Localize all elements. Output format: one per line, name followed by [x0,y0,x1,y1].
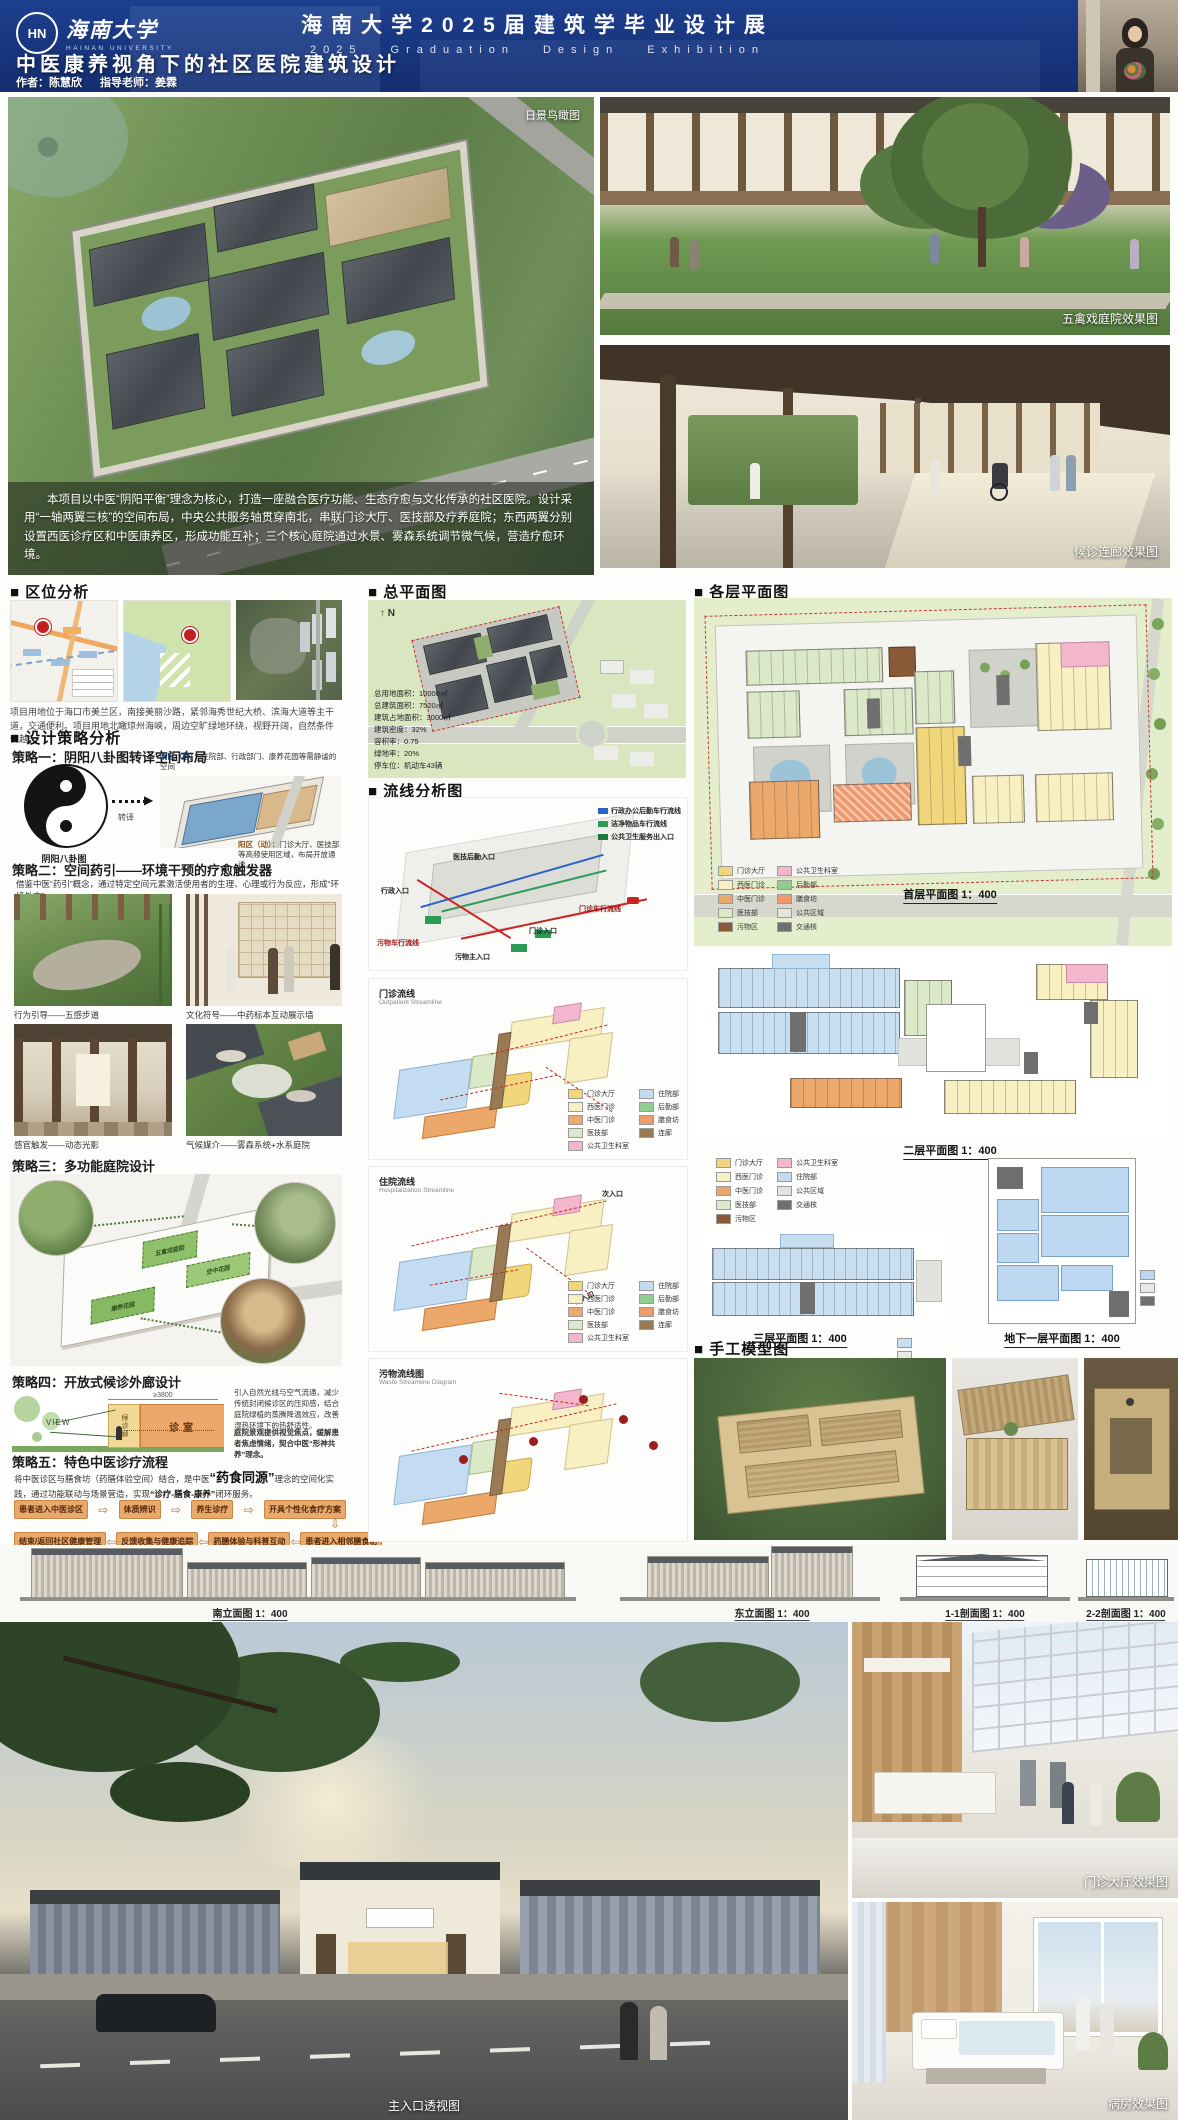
legend-label: 西医门诊 [587,1102,615,1112]
legend-item: 污物区 [718,922,765,932]
flow-down-arrow-icon: ⇩ [330,1518,340,1530]
s3-photo-circle-2 [254,1182,336,1264]
legend-item: 公共卫生科室 [777,866,838,876]
second-floor-label: 二层平面图 1：400 [903,1142,997,1160]
stat-line: 建筑占地面积：3000㎡ [374,712,451,723]
legend-item: 中医门诊 [568,1307,629,1317]
ward-nurse-figure [1076,1998,1090,2050]
legend-item: 门诊大厅 [718,866,765,876]
aerial-road-right [461,97,594,276]
legend-item: 医技部 [568,1320,629,1330]
section-title-models: ■ 手工模型图 [694,1338,789,1359]
corridor-wheelchair-wheel-icon [990,483,1008,501]
first-floor-label: 首层平面图 1：400 [903,886,997,904]
map-beach-strips [160,653,190,687]
legend-swatch [568,1102,583,1112]
legend-swatch [716,1200,731,1210]
strategy2-photo-wall-caption: 文化符号——中药标本互动展示墙 [186,1009,314,1021]
author-photo [1078,0,1178,92]
f1-east-rooms-2 [1035,772,1114,821]
s3-dotted-link [94,1215,184,1226]
legend-item: 住院部 [639,1281,679,1291]
courtyard-path [600,293,1170,309]
legend-label: 西医门诊 [735,1172,763,1182]
f2-top-rooms [772,954,830,969]
legend-label: 医技部 [735,1200,756,1210]
s4-room-box: 诊室 [140,1404,224,1448]
lobby-plant [1116,1772,1160,1822]
legend-swatch [718,894,733,904]
legend-swatch [716,1172,731,1182]
legend-swatch [777,922,792,932]
section-2-2-label: 2-2剖面图 1：400 [1086,1605,1165,1621]
corridor-column [660,375,676,568]
d1-label-outpatient-entry: 门诊入口 [529,926,557,936]
map-photo-road [316,600,320,700]
model-photo-3 [1084,1358,1178,1540]
f1-east-rooms [972,775,1026,824]
legend-label: 膳食坊 [658,1115,679,1125]
legend-item: 住院部 [777,1172,838,1182]
poster: HN 海南大学 HAINAN UNIVERSITY 海南大学2025届建筑学毕业… [0,0,1178,2120]
legend-label: 门诊大厅 [737,866,765,876]
strategy2-photo-mist-caption: 气候媒介——雾森系统+水系庭院 [186,1139,310,1151]
legend-item: 门诊大厅 [568,1281,629,1291]
legend-item: 连廊 [639,1128,679,1138]
legend-swatch [716,1158,731,1168]
corridor-far-building [880,403,1100,473]
legend-swatch [716,1186,731,1196]
d1-label-waste-entry: 污物主入口 [455,952,490,962]
legend-label: 住院部 [796,1172,817,1182]
entrance-sun-glow [200,1732,460,1872]
entrance-figure-2 [650,2006,667,2060]
legend-swatch [777,1158,792,1168]
mp-neighbor-buildings [600,660,624,674]
stat-line: 建筑密度：32% [374,724,451,735]
flow-step: 体质辨识 [119,1500,161,1519]
s5-desc-3: 闭环服务。 [215,1489,258,1499]
east-elevation-label: 东立面图 1：400 [734,1605,809,1621]
s4-sight-arrow [50,1432,116,1438]
strategy4-title: 策略四：开放式候诊外廊设计 [12,1372,181,1391]
legend-swatch [718,866,733,876]
f1-legend: 门诊大厅西医门诊中医门诊医技部污物区公共卫生科室后勤部膳食坊公共区域交通核 [718,866,838,932]
legend-item: 膳食坊 [639,1115,679,1125]
legend-swatch [639,1128,654,1138]
strategy2-photo-mist-courtyard [186,1024,342,1136]
project-title: 中医康养视角下的社区医院建筑设计 [16,48,400,77]
b1-room [997,1233,1039,1263]
legend-swatch [639,1281,654,1291]
legend-swatch [777,1186,792,1196]
legend-item: 污物区 [716,1214,763,1224]
d3-name-en: Hospitalization Streamline [379,1187,454,1194]
legend-label: 医技部 [587,1320,608,1330]
f2-tcm-band [790,1078,902,1108]
building-block [213,183,318,252]
location-map-photo [236,600,342,700]
f2-legend: 门诊大厅西医门诊中医门诊医技部污物区公共卫生科室住院部公共区域交通核 [716,1158,838,1224]
d1-entry-arrow-icon [425,916,441,924]
legend-swatch [718,880,733,890]
elevation-strip: 南立面图 1：400 东立面图 1：400 1-1剖面图 1：400 2-2剖面… [0,1545,1178,1622]
b1-room [1041,1215,1129,1257]
section-2-2-drawing [1078,1545,1174,1607]
ward-window-mullion [1101,1918,1104,2028]
master-plan: ↑ N 总用地面积：10000㎡总建筑面积：7520㎡建筑占地面积：3000㎡建… [368,600,686,778]
legend-swatch [568,1307,583,1317]
b1-room [1061,1265,1113,1291]
legend-swatch [777,1200,792,1210]
legend-label: 交通核 [796,922,817,932]
s5-desc-1: 将中医诊区与膳食坊（药膳体验空间）结合，是中医 [14,1474,210,1484]
legend-item: 西医门诊 [718,880,765,890]
legend-label: 公共区域 [796,1186,824,1196]
basement-plan [988,1158,1136,1324]
map-photo-towers [326,608,336,638]
flow-arrow-icon: ⇨ [171,1504,181,1516]
lobby-kiosk [1020,1760,1036,1806]
legend-item: 门诊大厅 [568,1089,629,1099]
stat-line: 总建筑面积：7520㎡ [374,700,451,711]
legend-label: 膳食坊 [658,1307,679,1317]
legend-swatch [777,894,792,904]
legend-item: 医技部 [718,908,765,918]
lobby-skylight [972,1622,1178,1753]
section-title-location: ■ 区位分析 [10,581,89,602]
legend-item: 中医门诊 [716,1186,763,1196]
legend-item: 公共区域 [777,908,838,918]
photo-flower-bouquet [1124,62,1146,80]
s3-photo-circle-3 [220,1278,306,1364]
entrance-car [96,1994,216,2032]
photo-building-column [1086,0,1100,92]
legend-label: 公共卫生科室 [587,1333,629,1343]
stat-line: 容积率：0.75 [374,736,451,747]
courtyard-figure [670,237,679,267]
circulation-legend: 门诊大厅西医门诊中医门诊医技部公共卫生科室住院部后勤部膳食坊连廊 [568,1089,679,1151]
f2-public-health [1066,964,1108,983]
legend-label: 西医门诊 [587,1294,615,1304]
strategy2-photo-colonnade [14,1024,172,1136]
f2-inpatient-band-2 [718,1012,900,1054]
legend-label: 后勤部 [658,1294,679,1304]
strategy2-photo-path [14,894,172,1006]
legend-item: 后勤部 [777,880,838,890]
ward-bed-base [926,2068,1046,2084]
f1-medtech-wing [746,647,883,685]
legend-label: 公共卫生科室 [796,866,838,876]
translate-arrow-icon [112,800,146,803]
s4-tree-icon [14,1396,40,1422]
lobby-counter [874,1772,996,1814]
strategy2-title: 策略二：空间药引——环境干预的疗愈触发器 [12,860,272,879]
b1-core [997,1167,1023,1189]
legend-swatch [718,908,733,918]
legend-swatch [568,1115,583,1125]
legend-swatch [639,1294,654,1304]
s5-desc-highlight: “药食同源” [210,1470,275,1485]
location-map-roads [10,600,118,702]
legend-item: 交通核 [777,922,838,932]
s4-dim-label: ≥3800 [108,1392,218,1400]
d4-waste-point-icon [459,1455,468,1464]
s4-dotted-arrow [126,1430,214,1431]
entrance-tree-canopy [0,1622,240,1772]
legend-swatch [718,922,733,932]
building-block [342,237,456,324]
ward-curtain [852,1902,886,2082]
lobby-label: 门诊大厅效果图 [1084,1873,1168,1890]
ward-label: 病房效果图 [1108,2095,1168,2112]
d1-label: 洁净物品车行流线 [611,819,667,829]
s3-photo-circle-1 [18,1180,94,1256]
entrance-figure-1 [620,2002,638,2060]
section-title-master-plan: ■ 总平面图 [368,581,447,602]
lobby-signage [864,1658,950,1672]
mp-building [529,645,568,685]
s4-person-icon [116,1426,122,1440]
stat-line: 绿地率：20% [374,748,451,759]
f3-top-rooms [780,1234,834,1248]
legend-swatch [639,1320,654,1330]
d1-label: 行政办公后勤车行流线 [611,806,681,816]
legend-label: 门诊大厅 [735,1158,763,1168]
circulation-hospitalization-diagram: 住院流线 Hospitalization Streamline 次入口 主入口 … [368,1166,688,1352]
s3-courtyard-1-label: 五禽戏庭院 [155,1242,185,1258]
map-site-marker [35,619,51,635]
circulation-waste-diagram: 污物流线图 Waste Streamline Diagram [368,1358,688,1542]
aerial-render: 日景鸟瞰图 本项目以中医“阴阳平衡”理念为核心，打造一座融合医疗功能、生态疗愈与… [8,97,594,575]
legend-item: 西医门诊 [568,1102,629,1112]
f2-core [790,1012,806,1052]
legend-label: 住院部 [658,1089,679,1099]
s5-desc-highlight-2: “诊疗-膳食-康养” [150,1489,215,1499]
d3-entry1-label: 次入口 [602,1189,623,1199]
s4-sight-arrow [55,1410,116,1424]
s3-courtyard-2-label: 空中花园 [206,1263,230,1277]
strategy4-para1: 引入自然光线与空气流通，减少传统封闭候诊区的压抑感，结合庭院绿植的蒸腾降温效应，… [234,1388,344,1432]
b1-room [1041,1167,1129,1213]
second-floor-plan [694,952,1172,1138]
entrance-render: 主入口透视图 [0,1622,848,2120]
aerial-water [8,97,128,197]
legend-item: 中医门诊 [568,1115,629,1125]
legend-label: 公共卫生科室 [796,1158,838,1168]
f2-east-col [1090,1000,1138,1078]
strategy1-axon [160,776,342,848]
s4-room-label: 诊室 [169,1419,197,1434]
ward-render: 病房效果图 [852,1902,1178,2120]
legend-item: 中医门诊 [718,894,765,904]
circulation-vehicle-diagram: 行政办公后勤车行流线 洁净物品车行流线 公共卫生服务出入口 医技后勤入口 行政入… [368,797,688,971]
corridor-label: 候诊连廊效果图 [1074,543,1158,560]
legend-label: 交通核 [796,1200,817,1210]
mp-north-label: N [388,608,395,619]
ward-plant [1138,2032,1168,2070]
model-figure [1126,1398,1134,1406]
legend-item: 后勤部 [639,1102,679,1112]
d1-label-medtech-entry: 医技后勤入口 [453,852,495,862]
ward-bed [912,2012,1064,2070]
location-map-coast [123,600,231,702]
section-title-strategies: ■ 设计策略分析 [10,727,121,748]
circulation-legend-2: 门诊大厅西医门诊中医门诊医技部公共卫生科室住院部后勤部膳食坊连廊 [568,1281,679,1343]
legend-label: 中医门诊 [587,1307,615,1317]
south-elevation-label: 南立面图 1：400 [212,1605,287,1621]
translate-arrow-label: 转译 [118,812,134,823]
car-icon [627,897,639,904]
legend-item: 公共卫生科室 [568,1333,629,1343]
legend-swatch [568,1281,583,1291]
b1-core-2 [1109,1291,1129,1317]
legend-label: 后勤部 [796,880,817,890]
flow-arrow-icon: ⇨ [244,1504,254,1516]
expo-title: 海南大学2025届建筑学毕业设计展 [0,9,1075,39]
strategy2-photo-wall [186,894,342,1006]
third-floor-plan [700,1230,950,1324]
master-plan-stats: 总用地面积：10000㎡总建筑面积：7520㎡建筑占地面积：3000㎡建筑密度：… [374,688,451,771]
mp-courtyard [531,679,561,699]
model-courtyard-void [1110,1418,1152,1474]
legend-label: 后勤部 [658,1102,679,1112]
aerial-building-cluster [72,141,487,477]
strategy1-yin-label: 阴区（静）：住院部、行政部门、康养花园等需静谧的空间 [160,752,342,772]
courtyard-label: 五禽戏庭院效果图 [1062,310,1158,327]
legend-label: 医技部 [737,908,758,918]
legend-swatch [568,1089,583,1099]
mp-building [486,656,535,703]
model-closeup-facade [966,1438,1068,1510]
building-block [106,332,206,430]
legend-swatch [639,1089,654,1099]
strategy2-photo-colonnade-caption: 感官触发——动态光影 [14,1139,99,1151]
f2-core-2 [1024,1052,1038,1074]
legend-swatch [639,1102,654,1112]
lobby-render: 门诊大厅效果图 [852,1622,1178,1898]
legend-swatch [639,1115,654,1125]
legend-item: 膳食坊 [639,1307,679,1317]
legend-label: 膳食坊 [796,894,817,904]
f3-right-block [916,1260,942,1302]
legend-item: 医技部 [716,1200,763,1210]
legend-label: 连廊 [658,1128,672,1138]
legend-label: 住院部 [658,1281,679,1291]
legend-label: 医技部 [587,1128,608,1138]
map-blue-tags [23,649,41,656]
strategy5-flow-top: 患者进入中医诊区⇨体质辨识⇨养生诊疗⇨开具个性化食疗方案 [14,1500,346,1519]
author: 作者：陈慧欣 [16,74,82,90]
map-site-marker [182,627,198,643]
translate-arrow-head-icon: ▶ [144,793,153,807]
f1-medtech-wing-3 [843,687,913,736]
legend-label: 门诊大厅 [587,1089,615,1099]
section-1-1-label: 1-1剖面图 1：400 [945,1605,1024,1621]
legend-swatch [777,866,792,876]
legend-item: 公共卫生科室 [777,1158,838,1168]
axon-yin-zone [181,793,263,845]
legend-label: 污物区 [735,1214,756,1224]
s3-courtyard-3-label: 康养花园 [111,1299,135,1313]
stat-line: 总用地面积：10000㎡ [374,688,451,699]
courtyard-walkway [600,191,1170,205]
yang-title: 阳区（动）： [238,840,279,849]
d4-name-en: Waste Streamline Diagram [379,1379,456,1386]
flow-step: 患者进入中医诊区 [14,1500,88,1519]
section-1-1-drawing [900,1545,1070,1607]
strategy2-photo-path-caption: 行为引导——五感步道 [14,1009,99,1021]
legend-label: 公共区域 [796,908,824,918]
flow-step: 养生诊疗 [191,1500,233,1519]
building-block [208,252,329,341]
d1-label-waste-flow: 污物车行流线 [377,938,419,948]
legend-item: 住院部 [639,1089,679,1099]
legend-swatch [777,1172,792,1182]
entry-icon [598,834,608,840]
b1-room [997,1265,1059,1301]
strategy5-desc: 将中医诊区与膳食坊（药膳体验空间）结合，是中医“药食同源”理念的空间化实践，通过… [14,1468,344,1500]
f1-canteen-strip [833,783,912,822]
legend-swatch [568,1333,583,1343]
strategy4-para2: 庭院景观提供视觉焦点，缓解患者焦虑情绪，契合中医“形神共养”理念。 [234,1428,344,1461]
legend-swatch [568,1294,583,1304]
b1-mini-legend [1140,1270,1155,1306]
legend-swatch [568,1320,583,1330]
d4-axon [390,1386,650,1532]
b1-room [997,1199,1039,1231]
corridor-render: 候诊连廊效果图 [600,345,1170,568]
building-block [225,328,324,416]
mp-roundabout [576,718,608,750]
axon-slab [174,776,324,848]
courtyard-render: 五禽戏庭院效果图 [600,97,1170,335]
d1-label-outpatient-flow: 门诊车行流线 [579,904,621,914]
f2-bottom-rooms [944,1080,1076,1114]
east-elevation-drawing [620,1545,880,1607]
f1-medtech-wing-2 [747,690,801,739]
legend-label: 中医门诊 [737,894,765,904]
taiji-icon [24,764,108,848]
legend-item: 西医门诊 [568,1294,629,1304]
courtyard-trunk [978,207,986,267]
basement-label: 地下一层平面图 1：400 [1004,1330,1120,1348]
f3-band-1 [712,1248,914,1280]
strategy3-title: 策略三：多功能庭院设计 [12,1156,155,1175]
building-block-tan [324,166,452,247]
stat-line: 停车位：机动车43辆 [374,760,451,771]
f1-site [715,615,1144,880]
courtyard-pond [140,292,192,336]
f1-public-health-block [1061,641,1110,667]
entrance-gate [300,1862,500,1992]
header-banner: HN 海南大学 HAINAN UNIVERSITY 海南大学2025届建筑学毕业… [0,0,1178,92]
lobby-figure-1 [1062,1782,1074,1824]
aerial-intro-text: 本项目以中医“阴阳平衡”理念为核心，打造一座融合医疗功能、生态疗愈与文化传承的社… [8,482,594,576]
f3-core [800,1282,815,1314]
f1-core [958,736,971,767]
courtyard-gallery [600,113,1170,191]
truck-icon [598,821,608,827]
bus-icon [598,808,608,814]
legend-label: 连廊 [658,1320,672,1330]
f2-inpatient-band-1 [718,968,900,1008]
legend-item: 后勤部 [639,1294,679,1304]
corridor-figures [1050,455,1060,491]
map-photo-clearing [250,618,306,674]
legend-swatch [568,1141,583,1151]
photo-person-face [1128,26,1142,42]
